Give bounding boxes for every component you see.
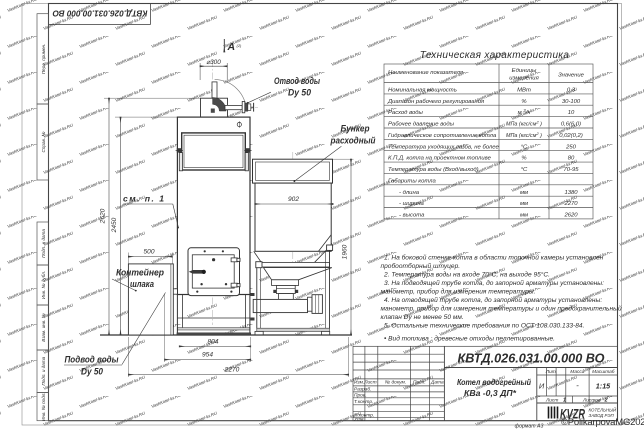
svg-text:- высота: - высота: [399, 213, 425, 219]
svg-text:Температура воды (Вход/выход): Температура воды (Вход/выход): [388, 167, 479, 173]
svg-text:°С: °С: [521, 144, 528, 150]
svg-text:И: И: [539, 382, 545, 391]
svg-text:902: 902: [288, 196, 299, 203]
svg-text:Расход воды: Расход воды: [388, 110, 424, 116]
svg-text:2: 2: [603, 398, 607, 404]
svg-text:Диапазон рабочего регулировани: Диапазон рабочего регулирования: [387, 99, 485, 105]
svg-text:мм: мм: [520, 201, 528, 207]
svg-text:Изм.Лист: Изм.Лист: [354, 380, 377, 386]
svg-text:Т.контр.: Т.контр.: [354, 399, 373, 405]
svg-text:0,3: 0,3: [567, 88, 576, 94]
svg-text:Разраб.: Разраб.: [354, 387, 371, 393]
svg-text:Дата: Дата: [430, 380, 444, 386]
svg-text:К.П.Д. котла на проектном топл: К.П.Д. котла на проектном топливе: [388, 156, 492, 162]
svg-text:Перв. примен.: Перв. примен.: [41, 44, 46, 75]
svg-text:Наименование показателя: Наименование показателя: [388, 70, 464, 76]
svg-text:Бункер: Бункер: [341, 124, 371, 134]
svg-text:5. Остальные технические треб: 5. Остальные технические требования по О…: [384, 322, 585, 330]
svg-text:Техническая характеристика: Техническая характеристика: [420, 50, 570, 61]
svg-text:формат А3: формат А3: [515, 424, 544, 430]
svg-text:мм: мм: [520, 190, 528, 196]
svg-text:1. На боковой стенке котла в: 1. На боковой стенке котла в области топ…: [384, 254, 604, 262]
svg-text:10: 10: [568, 110, 575, 116]
svg-text:Гидравлическое сопротивление к: Гидравлическое сопротивление котла: [388, 133, 497, 139]
svg-text:2620: 2620: [563, 213, 578, 219]
svg-text:пробоотборный штуцер.: пробоотборный штуцер.: [381, 262, 461, 270]
svg-text:%: %: [521, 156, 526, 162]
svg-text:2. Температура воды на входе: 2. Температура воды на входе 70°С, на вы…: [383, 271, 550, 279]
svg-text:⌀300: ⌀300: [206, 59, 221, 66]
svg-text:Температура уходящих газов, не: Температура уходящих газов, не более: [388, 144, 499, 150]
svg-text:мм: мм: [520, 213, 528, 219]
svg-text:манометр, прибор для измерени: манометр, прибор для измерения температу…: [381, 305, 622, 313]
svg-text:клапан Dу не менее 50 мм.: клапан Dу не менее 50 мм.: [381, 314, 464, 321]
svg-text:2450: 2450: [111, 217, 118, 233]
svg-text:70-95: 70-95: [563, 167, 579, 173]
svg-text:МВт: МВт: [517, 88, 531, 94]
svg-text:Инв. № дубл.: Инв. № дубл.: [41, 271, 46, 299]
svg-text:Справ. №: Справ. №: [41, 132, 46, 153]
svg-text:2270: 2270: [224, 367, 240, 374]
svg-text:• Вид топлива : древесные от: • Вид топлива : древесные отходы пеллети…: [384, 335, 555, 343]
svg-text:Листов: Листов: [582, 398, 601, 404]
svg-text:Котел водогрейный: Котел водогрейный: [457, 378, 531, 387]
svg-text:2620: 2620: [100, 208, 107, 224]
svg-text:Рабочее давление воды: Рабочее давление воды: [388, 122, 455, 128]
svg-text:Подп. и дата: Подп. и дата: [41, 356, 46, 385]
svg-text:30-100: 30-100: [562, 99, 581, 105]
svg-text:2270: 2270: [563, 201, 578, 207]
svg-text:Габариты котла: Габариты котла: [388, 178, 436, 184]
svg-text:Лист: Лист: [545, 398, 558, 404]
svg-text:Номинальная мощность: Номинальная мощность: [388, 88, 457, 94]
svg-text:Пров.: Пров.: [354, 393, 367, 399]
svg-text:- ширина: - ширина: [399, 201, 425, 207]
svg-text:КВа -0,3 ДП*: КВа -0,3 ДП*: [464, 389, 517, 398]
svg-text:Отвод воды: Отвод воды: [274, 76, 320, 86]
svg-text:Контейнер: Контейнер: [116, 268, 165, 278]
svg-text:1:15: 1:15: [596, 382, 611, 391]
svg-text:250: 250: [565, 144, 577, 150]
svg-text:©PolikarpovaMG2021: ©PolikarpovaMG2021: [561, 417, 644, 428]
svg-text:измерения: измерения: [509, 76, 539, 82]
svg-text:1960: 1960: [342, 244, 349, 259]
svg-text:Единицы: Единицы: [512, 68, 537, 74]
svg-text:Утв.: Утв.: [354, 417, 365, 423]
svg-text:Инв. № подл.: Инв. № подл.: [41, 392, 46, 421]
svg-text:Масса: Масса: [570, 369, 585, 375]
svg-text:0,02(0,2): 0,02(0,2): [559, 133, 583, 139]
svg-text:1: 1: [563, 398, 566, 404]
svg-text:№ докум.: № докум.: [385, 380, 406, 386]
svg-text:Взам. инв. №: Взам. инв. №: [41, 313, 46, 341]
svg-text:Значение: Значение: [558, 73, 585, 79]
svg-text:(2): (2): [237, 43, 243, 48]
svg-text:расходный: расходный: [330, 136, 376, 146]
svg-text:500: 500: [143, 249, 154, 256]
svg-text:1380: 1380: [564, 190, 578, 196]
svg-text:Dy 50: Dy 50: [81, 367, 103, 377]
svg-text:%: %: [521, 99, 526, 105]
svg-text:Масштаб: Масштаб: [592, 369, 615, 375]
svg-text:-: -: [576, 381, 579, 390]
svg-text:804: 804: [207, 339, 218, 346]
svg-text:манометр, прибор для измерени: манометр, прибор для измерения температу…: [381, 288, 536, 296]
svg-text:шлака: шлака: [130, 279, 154, 289]
svg-text:А: А: [227, 41, 236, 53]
svg-text:КОТЕЛЬНЫЙ: КОТЕЛЬНЫЙ: [589, 408, 617, 413]
svg-text:Подп.: Подп.: [413, 380, 426, 386]
svg-text:КВТД.026.031.00.000 ВО: КВТД.026.031.00.000 ВО: [52, 9, 148, 18]
svg-text:0,6(6,0): 0,6(6,0): [561, 122, 581, 128]
svg-text:954: 954: [202, 352, 213, 359]
svg-text:- длина: - длина: [399, 190, 420, 196]
svg-text:80: 80: [568, 156, 575, 162]
svg-text:°С: °С: [521, 167, 528, 173]
svg-text:Подвод воды: Подвод воды: [65, 355, 119, 365]
svg-text:Подп. и дата: Подп. и дата: [41, 229, 46, 258]
svg-text:4. На отводящей трубе котла,: 4. На отводящей трубе котла, до запорной…: [384, 296, 602, 304]
svg-text:3. На подводящей трубе котла,: 3. На подводящей трубе котла, до запорно…: [384, 279, 604, 287]
svg-text:Dy 50: Dy 50: [288, 88, 311, 98]
svg-text:Лит.: Лит.: [545, 369, 557, 375]
svg-text:КВТД.026.031.00.000 ВО: КВТД.026.031.00.000 ВО: [458, 352, 605, 366]
